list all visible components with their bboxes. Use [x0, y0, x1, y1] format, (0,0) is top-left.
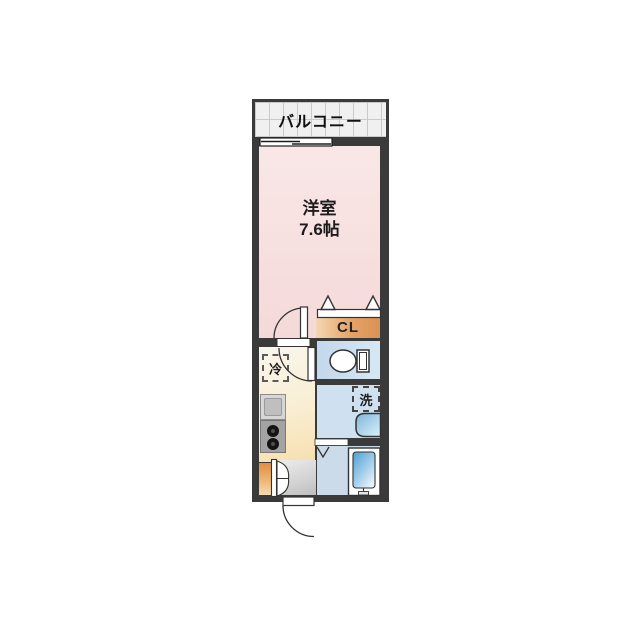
western-room-size: 7.6帖: [259, 219, 380, 240]
toilet-room: [317, 341, 380, 379]
closet-label: CL: [337, 319, 359, 336]
balcony: バルコニー: [252, 99, 389, 140]
washing-machine-label: 洗: [359, 390, 372, 409]
refrigerator-label: 冷: [269, 359, 282, 378]
entrance-floor: [279, 460, 316, 495]
western-room-label: 洋室 7.6帖: [259, 198, 380, 240]
entrance-door-icon: [283, 497, 314, 537]
bathroom: [317, 446, 380, 495]
stove-burner-icon: [267, 438, 279, 450]
kitchen-sink-basin: [264, 398, 282, 416]
kitchen-sink-icon: [260, 394, 286, 420]
stove-burner-icon: [267, 425, 279, 437]
stove-icon: [260, 420, 286, 453]
refrigerator-space: 冷: [262, 354, 289, 382]
western-room: 洋室 7.6帖: [259, 146, 380, 338]
closet: CL: [316, 317, 380, 338]
balcony-label: バルコニー: [278, 108, 363, 132]
western-room-name: 洋室: [259, 198, 380, 219]
floor-plan: バルコニー 洋室 7.6帖 CL 冷 洗: [0, 0, 640, 640]
washing-machine-space: 洗: [352, 386, 380, 412]
shoe-cabinet: [259, 463, 274, 495]
